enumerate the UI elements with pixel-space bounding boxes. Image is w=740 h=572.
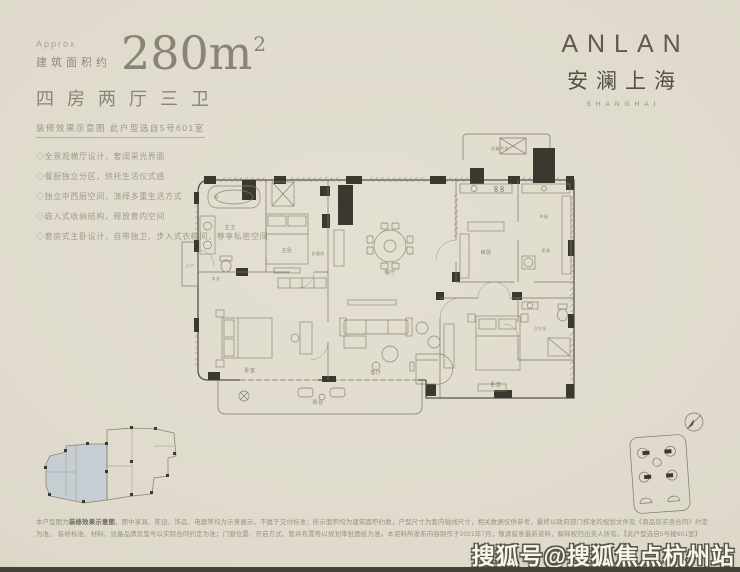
room-label: 玄关 <box>212 275 221 281</box>
balcony-furniture-icon <box>239 388 345 401</box>
brand-city: SHANGHAI <box>536 101 711 108</box>
dining-table-icon <box>367 223 413 269</box>
furniture <box>200 182 571 401</box>
room-label: 客厅 <box>370 369 381 376</box>
shower-icon <box>272 182 294 206</box>
toilet-icon <box>220 256 232 272</box>
service-kitchen-icon <box>522 184 571 274</box>
coffee-table-icon <box>382 346 398 362</box>
flyer-card: Approx 建筑面积约 280m2 四房两厅三卫 装修效果示意图 此户型选自5… <box>0 0 740 572</box>
photo-edge <box>0 567 740 572</box>
room-label: 卧室 <box>244 367 255 374</box>
sofa-icon <box>340 318 412 348</box>
room-label: 阳台 <box>312 399 323 406</box>
room-label: 主卫 <box>224 224 235 231</box>
master-bed-icon <box>266 214 308 273</box>
site-plan <box>626 406 721 518</box>
desk-icon <box>291 322 312 354</box>
room-label: 中厨 <box>540 213 549 219</box>
wardrobe-icon <box>444 324 454 368</box>
layout-line: 四房两厅三卫 <box>36 85 356 111</box>
room-label: 餐厅 <box>384 269 395 276</box>
area-label: 建筑面积约 <box>36 54 111 70</box>
wardrobe-icon <box>278 278 326 288</box>
area-value: 280m2 <box>121 30 266 76</box>
building-footprints <box>636 446 680 504</box>
room-label: 卫生间 <box>533 325 547 331</box>
room-label: 主卧 <box>281 247 292 254</box>
area-sup: 2 <box>253 32 266 56</box>
armchair-icon <box>416 322 428 334</box>
highlighted-unit <box>46 444 107 503</box>
floor-plan: 主卫 主卧 衣帽间 餐厅 西厨 中厨 家政 客厅 阳台 卧室 卧室 卫生间 玄关… <box>178 122 598 424</box>
kitchen-counter-icon <box>460 184 512 278</box>
compass-icon <box>685 413 703 431</box>
masterplan-outline <box>629 434 690 514</box>
key-plan <box>36 416 188 514</box>
approx-label: Approx <box>36 39 111 49</box>
brand-logo: ANLAN 安澜上海 SHANGHAI <box>536 30 706 108</box>
brand-chinese: 安澜上海 <box>536 65 714 95</box>
room-label: 西厨 <box>480 250 491 256</box>
vanity-icon <box>200 216 215 254</box>
brand-latin: ANLAN <box>536 30 715 59</box>
armchair-icon <box>428 336 440 348</box>
area-row: Approx 建筑面积约 280m2 <box>36 30 356 76</box>
sideboard-icon <box>334 230 344 266</box>
bed3-icon <box>468 314 528 370</box>
room-label: 设备平台 <box>491 145 509 151</box>
watermark: 搜狐号@搜狐焦点杭州站 <box>472 537 735 571</box>
room-label: 家政 <box>542 247 551 253</box>
room-label: 衣帽间 <box>311 250 325 256</box>
room-label: 入户 <box>186 262 195 268</box>
tv-console-icon <box>348 300 396 305</box>
room-label: 卧室 <box>490 381 501 388</box>
bed2-icon <box>216 310 272 367</box>
adjacent-unit <box>107 428 176 500</box>
partitions <box>198 180 574 398</box>
